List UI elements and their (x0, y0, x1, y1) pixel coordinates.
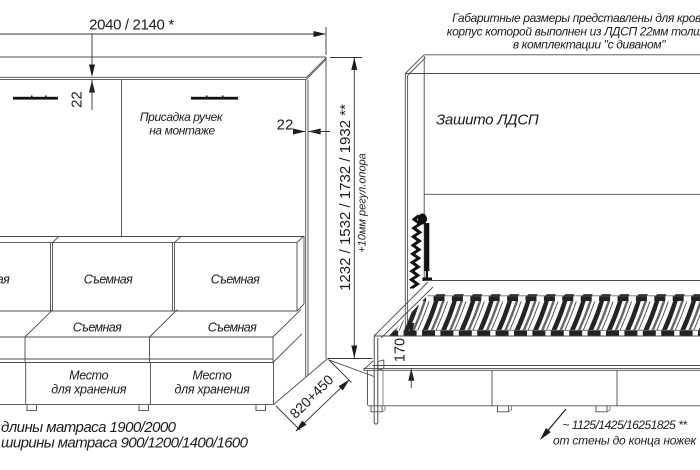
svg-text:Зашито ЛДСП: Зашито ЛДСП (436, 112, 539, 129)
svg-text:22: 22 (277, 117, 294, 134)
svg-text:Съемная: Съемная (84, 273, 133, 287)
svg-text:для хранения: для хранения (174, 383, 250, 397)
svg-text:Присадка ручек: Присадка ручек (140, 110, 224, 124)
svg-text:1232 / 1532 / 1732 / 1932 **: 1232 / 1532 / 1732 / 1932 ** (337, 104, 354, 291)
svg-text:в комплектации "с диваном": в комплектации "с диваном" (513, 38, 666, 52)
svg-text:22: 22 (69, 91, 86, 108)
svg-text:~ 1125/1425/16251825 **: ~ 1125/1425/16251825 ** (562, 418, 687, 432)
svg-text:Место: Место (69, 369, 109, 383)
svg-text:для хранения: для хранения (51, 383, 127, 397)
svg-text:корпус которой выполнен из ЛДС: корпус которой выполнен из ЛДСП 22мм тол… (447, 24, 700, 38)
svg-text:Габаритные размеры представлен: Габаритные размеры представлены для кров… (452, 11, 700, 25)
svg-text:+10мм регул.опора: +10мм регул.опора (357, 153, 369, 253)
svg-text:ая: ая (0, 273, 10, 287)
svg-text:Съемная: Съемная (208, 321, 257, 335)
svg-text:Место: Место (192, 369, 232, 383)
svg-text:820+450: 820+450 (286, 371, 336, 421)
svg-text:2040 / 2140 *: 2040 / 2140 * (89, 17, 174, 34)
svg-text:Съемная: Съемная (211, 273, 260, 287)
svg-text:от стены до конца ножек: от стены до конца ножек (553, 434, 698, 448)
svg-text:170: 170 (393, 338, 409, 362)
svg-text:Съемная: Съемная (73, 321, 122, 335)
svg-text:на монтаже: на монтаже (149, 124, 215, 138)
svg-text:ширины матраса 900/1200/1400/1: ширины матраса 900/1200/1400/1600 (1, 434, 249, 451)
